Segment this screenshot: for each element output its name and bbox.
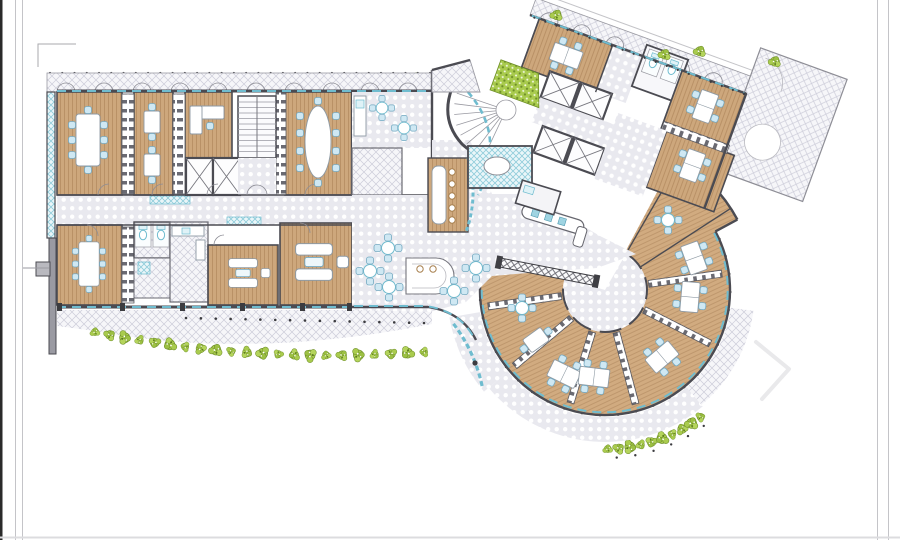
hedge-bush-icon — [335, 348, 350, 362]
site-wall-pier — [36, 262, 50, 276]
pantry — [352, 148, 402, 195]
bollard-icon — [319, 320, 322, 323]
floor-plan-canvas — [0, 0, 900, 540]
stool — [449, 205, 455, 211]
shelving-spine — [173, 94, 185, 194]
hedge-bush-icon — [272, 349, 284, 360]
hedge-bush-icon — [385, 349, 398, 360]
bollard-icon — [259, 318, 262, 321]
hedge-bush-icon — [241, 345, 254, 359]
bollard-icon — [703, 425, 705, 427]
hedge-bush-icon — [254, 346, 271, 362]
column — [472, 360, 477, 365]
stool — [430, 266, 436, 272]
bollard-icon — [304, 319, 307, 322]
stool — [449, 181, 455, 187]
hedge-bush-icon — [612, 440, 627, 455]
stool — [417, 266, 423, 272]
bollard-icon — [244, 318, 247, 321]
bollard-icon — [378, 321, 381, 324]
stair-west — [238, 96, 276, 195]
hedge-bush-icon — [320, 350, 332, 360]
hedge-bush-icon — [419, 347, 428, 357]
shelving-spine — [276, 92, 286, 195]
bollard-icon — [274, 319, 277, 322]
bollard-icon — [616, 456, 618, 458]
hedge-bush-icon — [180, 341, 190, 353]
stool — [449, 169, 455, 175]
hedge-bush-icon — [603, 445, 613, 453]
hedge-bush-icon — [398, 345, 416, 362]
corridor-console — [150, 196, 190, 204]
bollard-icon — [229, 318, 232, 321]
wc-block — [134, 222, 170, 298]
sheet-edge-dark — [0, 0, 3, 540]
bollard-icon — [289, 319, 292, 322]
bollard-icon — [200, 317, 203, 320]
floor-plan-sheet — [0, 0, 900, 540]
north-balcony — [47, 73, 432, 92]
bollard-icon — [652, 450, 654, 452]
bollard-icon — [333, 320, 336, 323]
site-wall — [49, 238, 56, 354]
hedge-bush-icon — [208, 342, 224, 356]
west-glazed-wall — [47, 92, 55, 238]
bollard-icon — [408, 321, 411, 324]
bollard-icon — [393, 321, 396, 324]
chair-icon — [207, 123, 214, 130]
shelving-spine — [122, 94, 134, 194]
bollard-icon — [348, 320, 351, 323]
hedge-bush-icon — [695, 410, 707, 423]
bollard-icon — [214, 317, 217, 320]
bollard-icon — [687, 435, 689, 437]
bollard-icon — [185, 317, 188, 320]
hedge-bush-icon — [645, 437, 658, 448]
kitchenette — [170, 222, 208, 302]
shelving-spine — [122, 227, 134, 303]
hedge-bush-icon — [287, 348, 300, 362]
hedge-bush-icon — [369, 348, 381, 361]
hedge-bush-icon — [302, 346, 318, 363]
l-desk-return — [190, 106, 202, 134]
reference-tick — [38, 44, 76, 67]
hedge-bush-icon — [624, 440, 636, 455]
chevron-right-icon — [756, 342, 789, 399]
sink — [356, 100, 364, 108]
corridor-console — [227, 217, 261, 225]
stool — [449, 217, 455, 223]
bollard-icon — [670, 443, 672, 445]
hedge-bush-icon — [635, 439, 648, 452]
bollard-icon — [634, 454, 636, 456]
hedge-bush-icon — [226, 345, 238, 358]
stool — [449, 193, 455, 199]
hedge-bush-icon — [667, 428, 677, 440]
bollard-icon — [423, 322, 426, 325]
hedge-bush-icon — [352, 347, 365, 363]
elevator-core-west — [186, 158, 240, 195]
hedge-bush-icon — [148, 337, 161, 348]
bollard-icon — [363, 320, 366, 323]
